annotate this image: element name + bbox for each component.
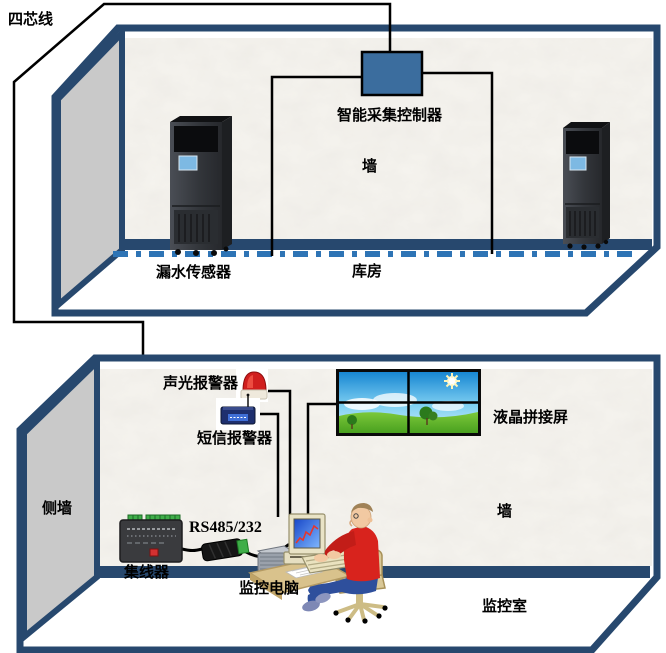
diagram-canvas: 四芯线 智能采集控制器 墙 漏水传感器 库房 — [0, 0, 666, 653]
label-controller: 智能采集控制器 — [337, 106, 443, 124]
label-hub: 集线器 — [123, 563, 170, 581]
person-hand — [314, 554, 328, 562]
label-side-wall: 侧墙 — [42, 499, 72, 517]
label-wall-top: 墙 — [362, 157, 377, 175]
hub-device — [120, 515, 182, 562]
acquisition-controller-box — [362, 52, 422, 95]
cabinet-screen — [570, 157, 586, 170]
hub-adapter-cable — [182, 549, 202, 551]
label-wall-bottom: 墙 — [497, 502, 512, 520]
hub-red-button — [150, 549, 158, 556]
label-monitor-room: 监控室 — [482, 597, 527, 615]
label-lcd-wall: 液晶拼接屏 — [493, 408, 568, 426]
lcd-video-wall — [336, 369, 481, 436]
diagram-page: 四芯线 智能采集控制器 墙 漏水传感器 库房 — [0, 0, 666, 653]
person-hand — [327, 551, 341, 559]
label-warehouse: 库房 — [352, 262, 382, 280]
label-monitor-pc: 监控电脑 — [239, 579, 299, 597]
label-four-core-wire: 四芯线 — [8, 10, 53, 28]
cabinet-ac-unit-left — [170, 116, 232, 256]
label-rs485: RS485/232 — [189, 519, 262, 536]
label-leak-sensor: 漏水传感器 — [156, 263, 232, 281]
label-sms-alarm: 短信报警器 — [197, 429, 273, 447]
cabinet-ac-unit-right — [563, 122, 610, 250]
label-sound-light-alarm: 声光报警器 — [162, 374, 239, 392]
alarm-beacon — [236, 368, 268, 402]
cabinet-screen — [179, 156, 197, 170]
